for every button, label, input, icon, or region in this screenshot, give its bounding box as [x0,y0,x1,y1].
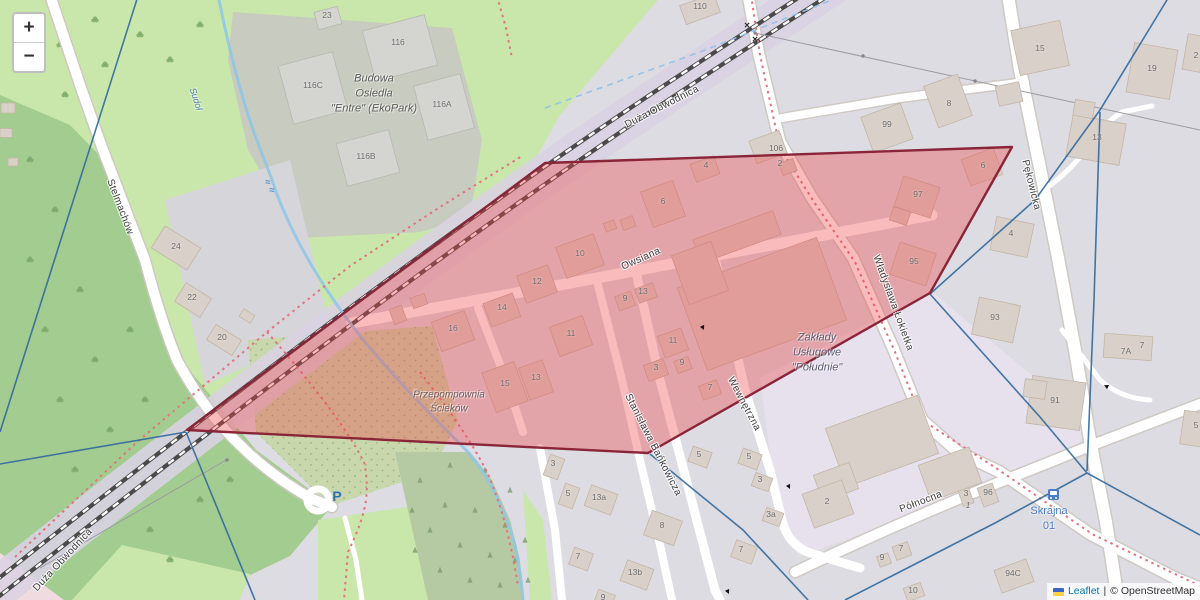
map-canvas[interactable]: Duża ObwodnicaDuża ObwodnicaStelmachówOw… [0,0,1200,600]
bus-stop-icon [1048,489,1059,500]
ukraine-flag-icon [1053,588,1064,596]
attribution-bar: Leaflet | © OpenStreetMap [1047,583,1200,600]
leaflet-link[interactable]: Leaflet [1068,583,1100,600]
osm-label: © OpenStreetMap [1110,583,1195,600]
zoom-out-button[interactable]: − [14,43,44,71]
zoom-in-button[interactable]: + [14,14,44,43]
base-map [0,0,1200,600]
zoom-control: + − [12,12,46,73]
attribution-separator: | [1103,583,1106,600]
